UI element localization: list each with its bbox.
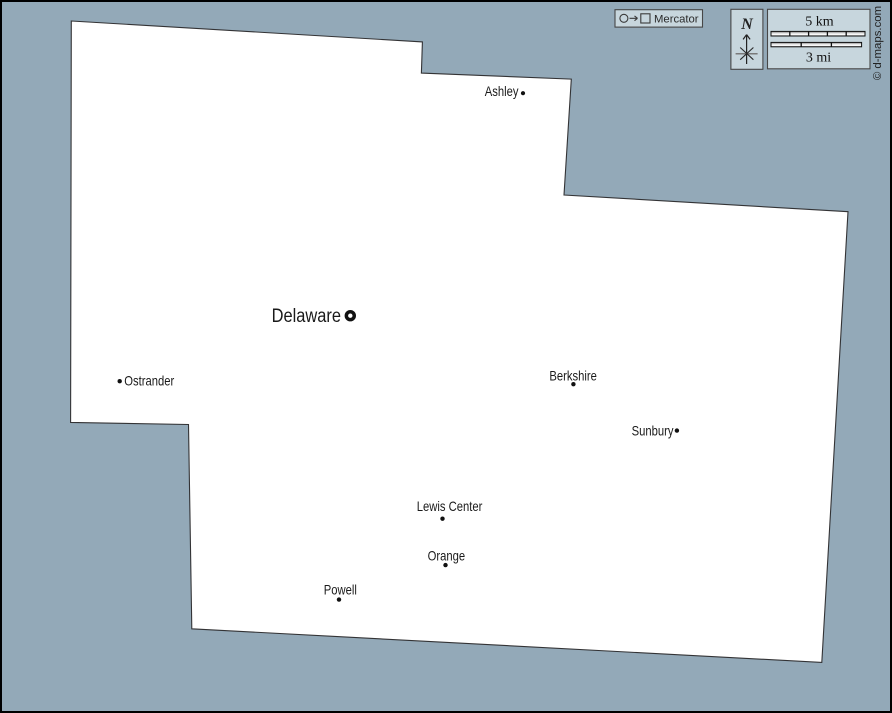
svg-text:Ostrander: Ostrander [124, 373, 174, 388]
svg-text:Berkshire: Berkshire [549, 368, 597, 383]
svg-text:Orange: Orange [428, 548, 466, 563]
svg-text:Delaware: Delaware [272, 305, 341, 327]
svg-text:3 mi: 3 mi [806, 51, 831, 66]
svg-text:© d-maps.com: © d-maps.com [872, 6, 884, 80]
svg-text:N: N [740, 16, 754, 33]
svg-text:Powell: Powell [324, 583, 357, 598]
svg-text:Mercator: Mercator [654, 13, 699, 25]
svg-text:Ashley: Ashley [485, 84, 519, 99]
svg-text:Sunbury: Sunbury [632, 424, 675, 439]
svg-text:5 km: 5 km [805, 15, 834, 30]
svg-text:Lewis Center: Lewis Center [417, 499, 483, 514]
